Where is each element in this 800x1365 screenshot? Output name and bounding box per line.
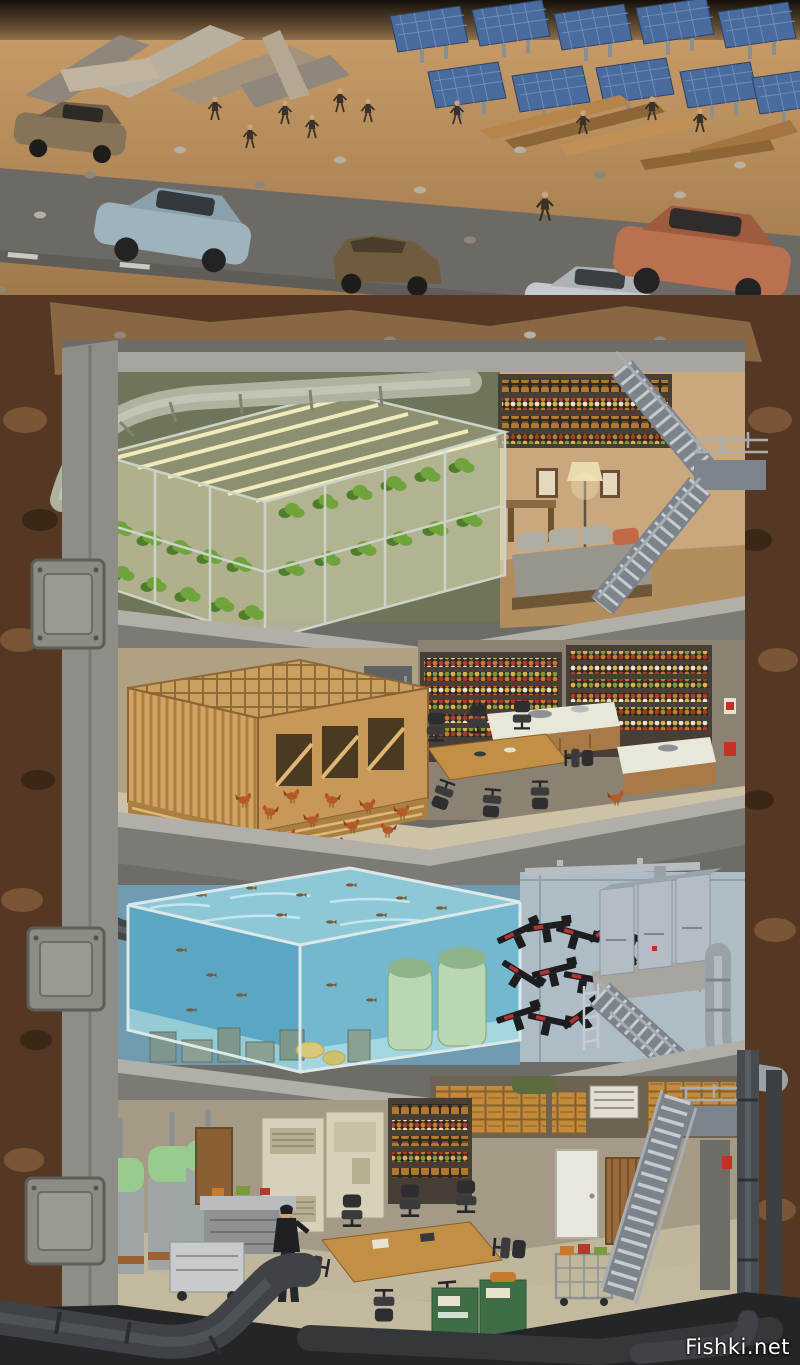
watermark: Fishki.net — [685, 1335, 790, 1359]
vertical-pipes-right — [738, 1050, 774, 1330]
utility-cabinets — [592, 868, 722, 1002]
stair-landing — [694, 460, 766, 490]
machine-load — [490, 1272, 516, 1282]
fish-tank — [128, 868, 520, 1072]
green-duffel — [512, 1076, 556, 1094]
scene-svg — [0, 0, 800, 1365]
bunker-cutaway-illustration: Fishki.net — [0, 0, 800, 1365]
wall-sign-red — [722, 1156, 732, 1169]
ac-unit — [590, 1086, 638, 1118]
tool-cart — [170, 1242, 244, 1301]
surface-scene — [0, 0, 800, 346]
